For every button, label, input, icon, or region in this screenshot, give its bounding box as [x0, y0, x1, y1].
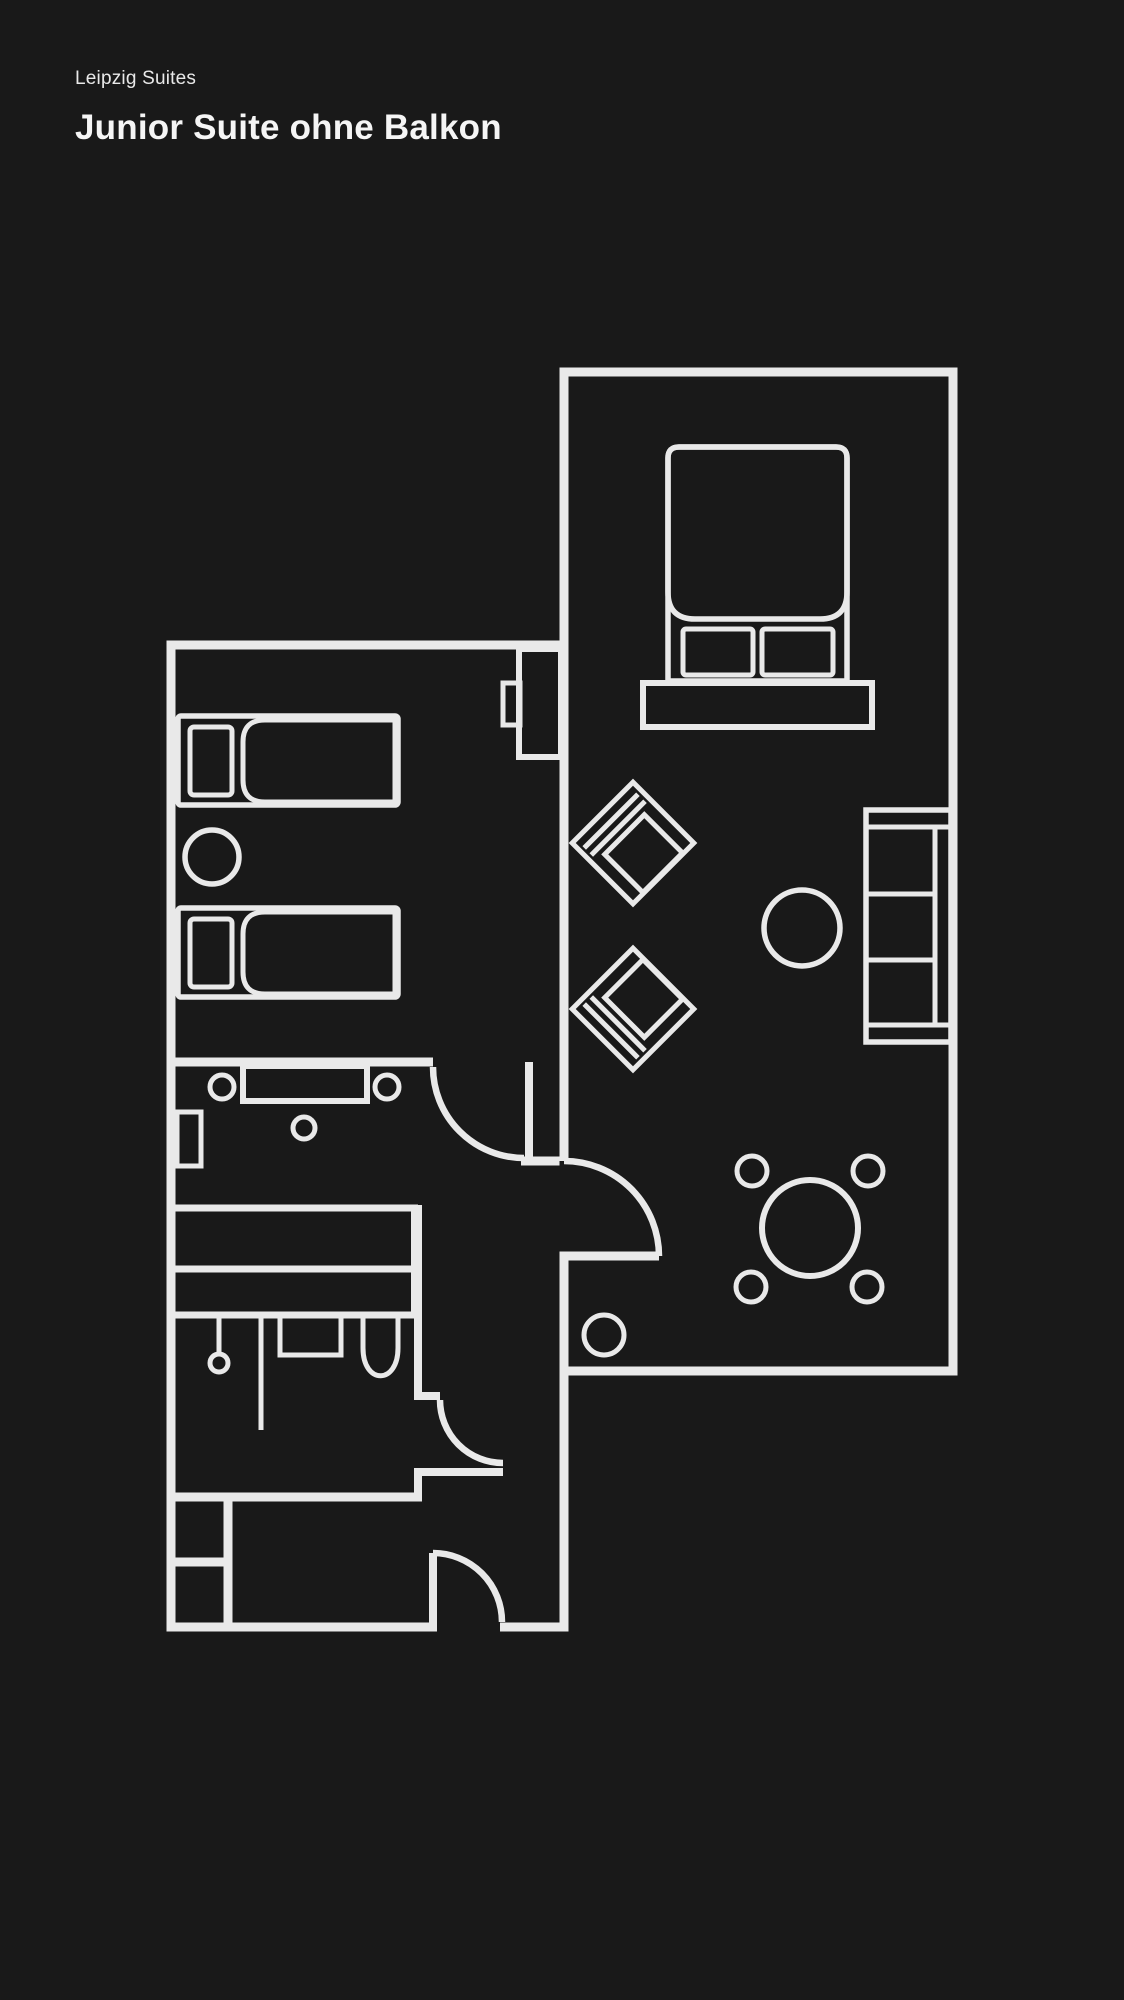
- bathtub: [171, 1208, 415, 1269]
- interior-walls: [167, 1062, 434, 1631]
- sofa: [866, 810, 951, 1042]
- armchair-2: [572, 948, 694, 1070]
- side-table: [764, 890, 840, 966]
- bathroom-fixtures: [210, 1318, 398, 1430]
- spotlight: [293, 1117, 315, 1139]
- armchair-2-seat: [605, 960, 683, 1038]
- bed-pillow-right: [762, 629, 833, 675]
- wardrobe-body: [519, 649, 561, 757]
- bed-frame: [668, 447, 847, 681]
- toilet: [363, 1318, 398, 1376]
- armchair-1-backrest: [591, 801, 645, 855]
- twin-bed-2-pillow: [190, 919, 232, 987]
- bed-pillow-left: [683, 629, 753, 675]
- spotlight: [210, 1075, 234, 1099]
- radiator: [177, 1112, 201, 1166]
- plant-pot: [584, 1315, 624, 1355]
- doors: [433, 1062, 659, 1627]
- entry-door-arc: [433, 1553, 502, 1622]
- bathtub-counter: [171, 1208, 415, 1315]
- spotlight: [375, 1075, 399, 1099]
- dining-chair: [736, 1272, 766, 1302]
- bath-counter: [171, 1269, 415, 1315]
- bathroom-walls: [414, 1205, 503, 1502]
- twin-bed-1-pillow: [190, 727, 232, 795]
- dining-set: [736, 1156, 883, 1302]
- dining-chair: [853, 1156, 883, 1186]
- twin-bed-1-mattress: [243, 720, 395, 802]
- floorplan-svg: [0, 0, 1124, 2000]
- dining-table: [762, 1180, 858, 1276]
- sofa-cushion-dividers: [866, 894, 935, 960]
- living-room-door-arc: [564, 1161, 659, 1256]
- twin-bed-2-mattress: [243, 912, 395, 994]
- washbasin: [280, 1318, 341, 1355]
- bed-headboard: [643, 683, 872, 727]
- dining-chair: [852, 1272, 882, 1302]
- double-bed: [643, 447, 872, 727]
- nightstand: [185, 830, 239, 884]
- vanity-shelf: [243, 1066, 367, 1101]
- wardrobe: [503, 649, 561, 757]
- bed-duvet: [668, 447, 847, 619]
- bedroom-door-arc: [433, 1067, 524, 1158]
- twin-bed-1: [178, 716, 398, 805]
- living-room-walls: [560, 368, 958, 1632]
- twin-bed-2: [178, 908, 398, 997]
- dining-chair: [737, 1156, 767, 1186]
- bathroom-door-arc: [440, 1400, 503, 1463]
- shower-head: [210, 1354, 228, 1372]
- left-wing-walls: [167, 641, 569, 1632]
- bathroom-vanity: [177, 1066, 399, 1166]
- armchair-2-backrest: [591, 997, 645, 1051]
- armchair-1: [572, 782, 694, 904]
- sofa-frame: [866, 810, 951, 1042]
- sofa-armrests: [866, 827, 951, 1025]
